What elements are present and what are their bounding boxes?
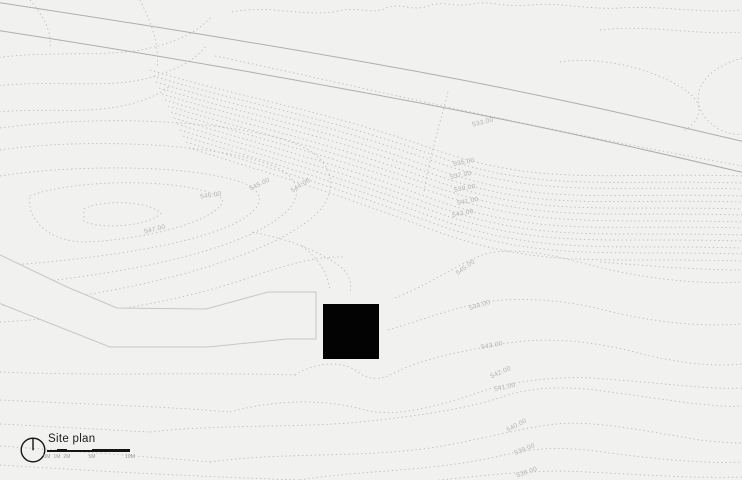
scale-bar-segment — [92, 449, 130, 453]
scale-bar: 0M 1M 2M 5M 10M — [47, 448, 130, 460]
contour-line — [252, 232, 351, 294]
contour-line — [600, 28, 742, 33]
contour-line — [0, 86, 170, 112]
contour-line — [150, 70, 742, 176]
contour-line — [215, 56, 742, 166]
contour-line — [156, 82, 742, 189]
contour-line — [210, 423, 742, 462]
contour-line — [0, 424, 150, 432]
site-plan-canvas: 533.00 535.00 537.00 539.00 541.00 543.0… — [0, 0, 742, 480]
contour-line — [0, 465, 300, 480]
contour-line — [0, 400, 230, 412]
scale-bar-segment — [67, 450, 92, 452]
scale-tick-label: 5M — [85, 454, 99, 460]
drawing-title: Site plan — [48, 433, 95, 445]
scale-bar-segment — [57, 449, 67, 453]
contour-line — [302, 246, 330, 290]
contour-line — [600, 262, 742, 270]
scale-tick-label: 2M — [60, 454, 74, 460]
contour-line — [560, 60, 699, 132]
contour-line — [430, 471, 742, 480]
title-block: Site plan 0M 1M 2M 5M 10M — [0, 0, 200, 60]
contour-line — [84, 203, 161, 226]
scale-tick-label: 10M — [123, 454, 137, 460]
north-indicator-icon — [18, 435, 48, 465]
contour-lines — [0, 0, 742, 480]
contour-line — [388, 300, 742, 331]
contour-line — [698, 58, 742, 134]
building-footprint — [323, 304, 379, 359]
contour-line — [395, 251, 742, 298]
contour-line — [232, 3, 742, 13]
driveway-terrace-outline — [0, 253, 316, 347]
topography-drawing — [0, 0, 742, 480]
contour-line — [30, 183, 223, 242]
contour-line — [0, 144, 296, 286]
contour-line — [0, 372, 295, 375]
scale-bar-segment — [47, 450, 57, 452]
